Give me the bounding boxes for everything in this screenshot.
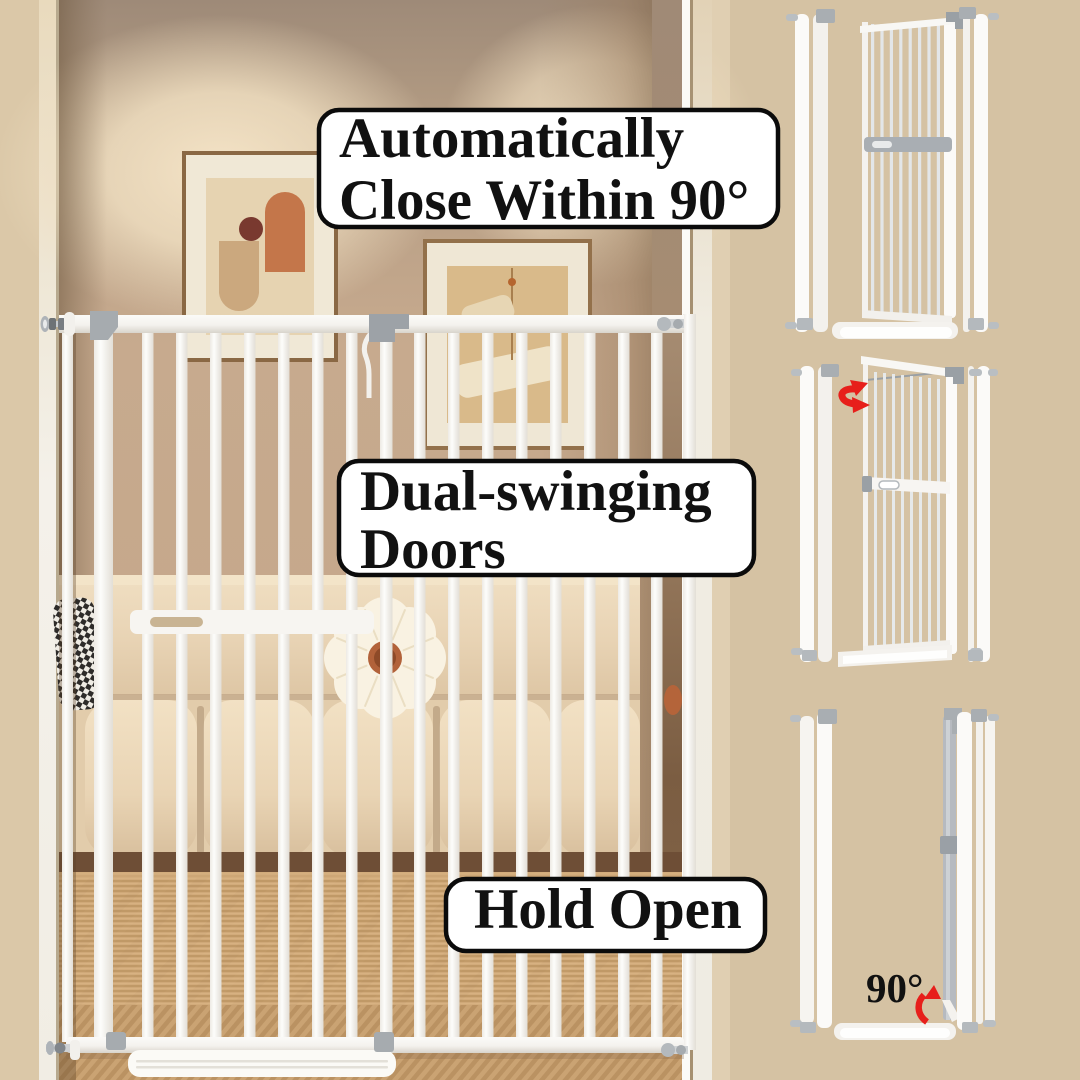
svg-text:90°: 90° xyxy=(866,965,923,1011)
svg-text:Doors: Doors xyxy=(360,518,506,581)
svg-text:Dual-swinging: Dual-swinging xyxy=(360,460,712,523)
svg-text:Close Within 90°: Close Within 90° xyxy=(339,169,749,232)
svg-text:Automatically: Automatically xyxy=(339,107,684,170)
svg-text:Hold Open: Hold Open xyxy=(474,878,742,941)
